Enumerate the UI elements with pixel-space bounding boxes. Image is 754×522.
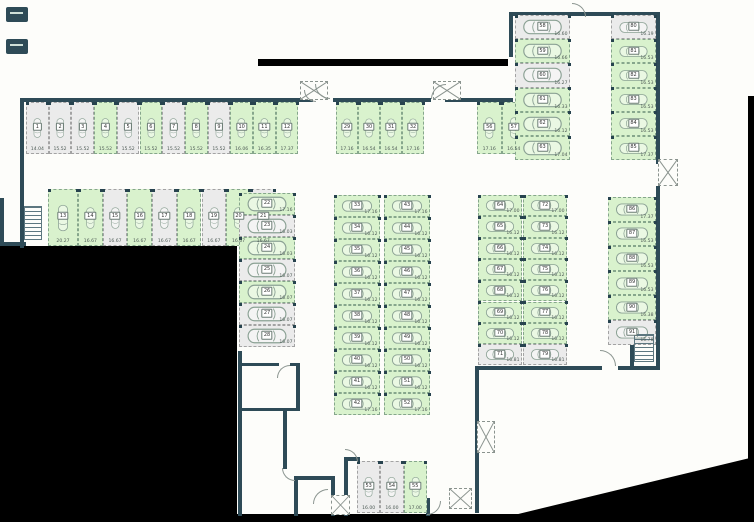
spot-size-label: 16.38 [640,313,653,318]
spot-size-label: 16.53 [640,129,653,134]
parking-spot-74[interactable]: 7416.12 [523,238,567,259]
spot-size-label: 15.52 [95,147,116,152]
spot-size-label: 16.12 [506,294,519,299]
parking-spot-76[interactable]: 7616.12 [523,280,567,301]
parking-spot-79[interactable]: 7916.81 [523,344,567,365]
parking-spot-80[interactable]: 8016.19 [611,15,656,39]
spot-size-label: 16.81 [551,358,564,363]
spot-number: 82 [628,71,639,80]
spot-size-label: 16.67 [203,239,226,244]
wall [2,242,26,246]
parking-spot-56[interactable]: 5617.16 [477,102,502,154]
spot-number: 20 [233,212,244,221]
spot-size-label: 17.37 [640,215,653,220]
spot-number: 52 [401,399,412,408]
spot-size-label: 16.12 [364,298,377,303]
spot-number: 14 [85,212,96,221]
spot-number: 48 [401,311,412,320]
spot-size-label: 17.00 [405,506,426,511]
spot-number: 60 [537,71,548,80]
spot-number: 71 [494,350,505,359]
spot-size-label: 16.12 [414,276,427,281]
spot-number: 70 [494,329,505,338]
parking-spot-66[interactable]: 6616.12 [478,238,522,259]
spot-number: 35 [351,245,362,254]
parking-spot-83[interactable]: 8316.53 [611,88,656,112]
spot-number: 40 [351,355,362,364]
spot-size-label: 15.52 [163,147,184,152]
spot-size-label: 15.52 [50,147,71,152]
door-arc-icon [572,3,586,17]
parking-spot-85[interactable]: 8517.37 [611,136,656,160]
spot-size-label: 16.12 [364,254,377,259]
parking-spot-3[interactable]: 315.52 [71,102,94,154]
door-arc-icon [313,489,328,504]
parking-spot-90[interactable]: 9016.38 [608,295,656,320]
parking-spot-35[interactable]: 3516.12 [334,239,380,261]
spot-number: 15 [109,212,120,221]
spot-size-label: 16.12 [551,252,564,257]
wall [656,12,660,164]
parking-spot-10[interactable]: 1016.06 [230,102,253,154]
parking-spot-6[interactable]: 615.52 [140,102,163,154]
spot-size-label: 17.16 [414,210,427,215]
spot-size-label: 16.27 [554,81,567,86]
spot-number: 16 [134,212,145,221]
spot-size-label: 15.52 [209,147,230,152]
stairs-icon [24,206,42,240]
spot-size-label: 16.78 [640,338,653,343]
spot-number: 34 [351,223,362,232]
spot-size-label: 16.12 [414,254,427,259]
spot-size-label: 16.12 [364,386,377,391]
spot-number: 72 [539,201,550,210]
void-area [0,246,237,522]
spot-number: 49 [401,333,412,342]
parking-spot-50[interactable]: 5016.12 [384,349,430,371]
door-arc-icon [277,365,290,378]
spot-number: 36 [351,267,362,276]
spot-size-label: 16.12 [364,276,377,281]
parking-spot-38[interactable]: 3816.12 [334,305,380,327]
parking-spot-70[interactable]: 7016.12 [478,323,522,344]
shaft-cross-icon [331,495,350,515]
spot-number: 13 [57,212,68,221]
spot-number: 31 [385,122,396,131]
parking-spot-58[interactable]: 5816.60 [515,15,570,39]
parking-spot-87[interactable]: 8716.53 [608,222,656,247]
parking-spot-60[interactable]: 6016.27 [515,63,570,87]
parking-spot-78[interactable]: 7816.12 [523,323,567,344]
parking-spot-31[interactable]: 3116.54 [380,102,402,154]
spot-number: 10 [236,122,247,131]
door-arc-icon [600,350,616,366]
spot-size-label: 16.54 [503,147,526,152]
spot-size-label: 16.19 [640,32,653,37]
parking-spot-12[interactable]: 1217.37 [276,102,299,154]
parking-spot-16[interactable]: 1616.67 [127,189,152,246]
spot-size-label: 16.67 [128,239,151,244]
spot-size-label: 17.00 [551,209,564,214]
parking-spot-28[interactable]: 2816.07 [239,325,295,347]
wall [294,476,334,480]
parking-spot-61[interactable]: 6116.33 [515,88,570,112]
spot-size-label: 16.12 [364,342,377,347]
parking-spot-5[interactable]: 515.52 [117,102,140,154]
parking-spot-41[interactable]: 4116.12 [334,371,380,393]
spot-size-label: 14.04 [27,147,48,152]
spot-number: 75 [539,265,550,274]
spot-size-label: 16.03 [279,252,292,257]
parking-spot-49[interactable]: 4916.12 [384,327,430,349]
spot-number: 57 [508,122,519,131]
spot-number: 38 [351,311,362,320]
parking-spot-14[interactable]: 1416.67 [78,189,103,246]
spot-number: 59 [537,46,548,55]
spot-size-label: 16.53 [640,56,653,61]
spot-size-label: 16.53 [640,81,653,86]
spot-size-label: 16.33 [554,105,567,110]
spot-size-label: 16.67 [178,239,201,244]
spot-size-label: 16.12 [551,316,564,321]
spot-size-label: 17.16 [279,208,292,213]
spot-size-label: 16.12 [506,252,519,257]
parking-spot-53[interactable]: 5316.00 [357,461,380,513]
parking-spot-44[interactable]: 4416.12 [384,217,430,239]
spot-number: 56 [484,122,495,131]
parking-spot-62[interactable]: 6216.12 [515,112,570,136]
spot-size-label: 16.12 [364,364,377,369]
parking-spot-18[interactable]: 1816.67 [177,189,202,246]
spot-size-label: 16.81 [506,358,519,363]
spot-number: 32 [407,122,418,131]
spot-number: 26 [261,287,272,296]
spot-size-label: 16.12 [554,129,567,134]
spot-number: 58 [537,22,548,31]
spot-number: 86 [626,204,637,213]
spot-number: 66 [494,243,505,252]
parking-spot-36[interactable]: 3616.12 [334,261,380,283]
spot-number: 67 [494,265,505,274]
parking-spot-15[interactable]: 1516.67 [103,189,128,246]
spot-size-label: 16.53 [640,264,653,269]
parking-spot-72[interactable]: 7217.00 [523,195,567,216]
parking-spot-68[interactable]: 6816.12 [478,280,522,301]
parking-spot-25[interactable]: 2516.07 [239,259,295,281]
spot-number: 17 [159,212,170,221]
spot-number: 46 [401,267,412,276]
parking-spot-84[interactable]: 8416.53 [611,112,656,136]
corner-marker-icon [6,7,28,22]
spot-number: 84 [628,119,639,128]
spot-number: 44 [401,223,412,232]
parking-spot-7[interactable]: 715.52 [162,102,185,154]
spot-size-label: 16.12 [414,386,427,391]
spot-number: 50 [401,355,412,364]
spot-size-label: 16.53 [640,105,653,110]
parking-spot-54[interactable]: 5416.00 [380,461,403,513]
spot-size-label: 16.00 [358,506,379,511]
spot-size-label: 16.54 [359,147,379,152]
spot-size-label: 16.12 [551,337,564,342]
spot-number: 9 [215,122,223,131]
parking-spot-34[interactable]: 3416.12 [334,217,380,239]
spot-number: 43 [401,201,412,210]
parking-spot-26[interactable]: 2616.07 [239,281,295,303]
spot-number: 91 [626,327,637,336]
spot-number: 27 [261,309,272,318]
parking-spot-4[interactable]: 415.52 [94,102,117,154]
spot-size-label: 16.54 [381,147,401,152]
spot-number: 22 [261,199,272,208]
shaft-cross-icon [477,421,495,453]
parking-spot-73[interactable]: 7316.12 [523,216,567,237]
spot-number: 61 [537,95,548,104]
parking-spot-32[interactable]: 3217.16 [402,102,424,154]
spot-number: 25 [261,265,272,274]
spot-number: 85 [628,143,639,152]
spot-size-label: 17.04 [554,153,567,158]
spot-size-label: 16.12 [506,337,519,342]
spot-size-label: 16.12 [551,294,564,299]
parking-spot-46[interactable]: 4616.12 [384,261,430,283]
spot-number: 76 [539,286,550,295]
spot-size-label: 16.12 [506,273,519,278]
parking-spot-45[interactable]: 4516.12 [384,239,430,261]
spot-number: 18 [183,212,194,221]
spot-size-label: 17.37 [277,147,298,152]
void-area [485,455,754,522]
wall [241,363,279,366]
spot-size-label: 17.16 [403,147,423,152]
spot-size-label: 16.67 [79,239,102,244]
spot-size-label: 16.12 [506,231,519,236]
parking-spot-55[interactable]: 5517.00 [404,461,427,513]
door-arc-icon [427,501,441,515]
parking-spot-75[interactable]: 7516.12 [523,259,567,280]
spot-size-label: 16.07 [279,296,292,301]
void-area [258,59,508,66]
spot-size-label: 16.12 [506,316,519,321]
spot-number: 45 [401,245,412,254]
spot-number: 51 [401,377,412,386]
spot-size-label: 16.00 [381,506,402,511]
spot-number: 41 [351,377,362,386]
spot-size-label: 16.53 [640,239,653,244]
spot-number: 77 [539,307,550,316]
wall [283,411,287,469]
spot-size-label: 16.35 [254,147,275,152]
spot-size-label: 17.16 [364,210,377,215]
spot-number: 83 [628,95,639,104]
spot-size-label: 17.16 [414,408,427,413]
spot-number: 88 [626,254,637,263]
parking-spot-77[interactable]: 7716.12 [523,302,567,323]
parking-spot-71[interactable]: 7116.81 [478,344,522,365]
parking-spot-2[interactable]: 215.52 [49,102,72,154]
spot-number: 7 [169,122,177,131]
parking-spot-67[interactable]: 6716.12 [478,259,522,280]
spot-number: 39 [351,333,362,342]
spot-number: 33 [351,201,362,210]
door-arc-icon [282,468,295,481]
parking-spot-43[interactable]: 4317.16 [384,195,430,217]
spot-number: 89 [626,278,637,287]
spot-number: 69 [494,307,505,316]
spot-number: 73 [539,222,550,231]
wall [0,198,4,246]
spot-number: 5 [124,122,132,131]
wall [618,366,658,370]
spot-number: 90 [626,303,637,312]
spot-size-label: 16.12 [364,232,377,237]
spot-number: 80 [628,22,639,31]
spot-size-label: 16.12 [414,364,427,369]
spot-size-label: 20.27 [49,239,77,244]
spot-size-label: 16.67 [104,239,127,244]
spot-number: 87 [626,229,637,238]
wall [238,351,242,516]
spot-number: 30 [363,122,374,131]
spot-number: 63 [537,143,548,152]
spot-size-label: 16.12 [414,342,427,347]
spot-number: 64 [494,201,505,210]
spot-size-label: 16.66 [554,56,567,61]
parking-spot-9[interactable]: 915.52 [208,102,231,154]
spot-size-label: 16.07 [279,318,292,323]
spot-number: 81 [628,46,639,55]
spot-number: 68 [494,286,505,295]
spot-number: 23 [261,221,272,230]
parking-spot-86[interactable]: 8617.37 [608,197,656,222]
spot-size-label: 16.07 [279,274,292,279]
parking-spot-91[interactable]: 9116.78 [608,320,656,345]
shaft-cross-icon [449,488,472,509]
spot-number: 47 [401,289,412,298]
wall [509,12,513,57]
parking-spot-52[interactable]: 5217.16 [384,393,430,415]
spot-number: 3 [79,122,87,131]
spot-number: 53 [363,481,374,490]
spot-number: 8 [192,122,200,131]
spot-size-label: 16.12 [364,320,377,325]
spot-number: 21 [258,212,269,221]
spot-size-label: 17.16 [364,408,377,413]
parking-spot-13[interactable]: 1320.27 [48,189,78,246]
spot-size-label: 17.16 [337,147,357,152]
parking-spot-30[interactable]: 3016.54 [358,102,380,154]
parking-spot-39[interactable]: 3916.12 [334,327,380,349]
spot-size-label: 17.00 [506,209,519,214]
wall [656,186,660,368]
parking-spot-19[interactable]: 1916.67 [202,189,227,246]
spot-size-label: 16.67 [227,239,250,244]
spot-number: 79 [539,350,550,359]
parking-spot-40[interactable]: 4016.12 [334,349,380,371]
parking-spot-65[interactable]: 6516.12 [478,216,522,237]
spot-size-label: 16.12 [551,273,564,278]
spot-size-label: 17.16 [478,147,501,152]
spot-number: 74 [539,243,550,252]
spot-number: 54 [386,481,397,490]
parking-spot-33[interactable]: 3317.16 [334,195,380,217]
spot-size-label: 15.52 [72,147,93,152]
spot-size-label: 16.07 [279,340,292,345]
spot-number: 55 [410,481,421,490]
spot-number: 12 [281,122,292,131]
spot-size-label: 16.53 [640,288,653,293]
parking-spot-89[interactable]: 8916.53 [608,271,656,296]
wall [296,363,300,411]
spot-number: 24 [261,243,272,252]
spot-size-label: 15.52 [141,147,162,152]
wall [477,366,602,370]
corner-marker-icon [6,39,28,54]
parking-spot-1[interactable]: 114.04 [26,102,49,154]
parking-spot-11[interactable]: 1116.35 [253,102,276,154]
spot-number: 11 [259,122,270,131]
parking-spot-82[interactable]: 8216.53 [611,63,656,87]
spot-size-label: 16.12 [551,231,564,236]
parking-spot-81[interactable]: 8116.53 [611,39,656,63]
wall [241,408,299,411]
spot-number: 19 [208,212,219,221]
spot-number: 28 [261,331,272,340]
spot-number: 62 [537,119,548,128]
parking-spot-64[interactable]: 6417.00 [478,195,522,216]
wall [294,476,298,516]
spot-number: 42 [351,399,362,408]
parking-spot-88[interactable]: 8816.53 [608,246,656,271]
spot-size-label: 16.03 [279,230,292,235]
spot-size-label: 16.67 [153,239,176,244]
door-arc-icon [345,449,358,462]
parking-spot-17[interactable]: 1716.67 [152,189,177,246]
parking-spot-8[interactable]: 815.52 [185,102,208,154]
spot-number: 2 [56,122,64,131]
parking-spot-59[interactable]: 5916.66 [515,39,570,63]
spot-number: 37 [351,289,362,298]
spot-size-label: 15.52 [118,147,139,152]
spot-number: 6 [147,122,155,131]
spot-number: 1 [33,122,41,131]
shaft-cross-icon [658,159,678,186]
spot-size-label: 16.12 [414,298,427,303]
floor-plan: 114.04215.52315.52415.52515.52615.52715.… [0,0,754,522]
spot-size-label: 16.12 [414,232,427,237]
parking-spot-47[interactable]: 4716.12 [384,283,430,305]
parking-spot-27[interactable]: 2716.07 [239,303,295,325]
spot-number: 65 [494,222,505,231]
parking-spot-51[interactable]: 5116.12 [384,371,430,393]
spot-number: 78 [539,329,550,338]
spot-number: 4 [101,122,109,131]
spot-number: 29 [341,122,352,131]
spot-size-label: 15.52 [186,147,207,152]
parking-spot-29[interactable]: 2917.16 [336,102,358,154]
spot-size-label: 17.37 [640,153,653,158]
spot-size-label: 16.12 [414,320,427,325]
spot-size-label: 16.06 [231,147,252,152]
parking-spot-42[interactable]: 4217.16 [334,393,380,415]
parking-spot-37[interactable]: 3716.12 [334,283,380,305]
spot-size-label: 16.60 [554,32,567,37]
parking-spot-69[interactable]: 6916.12 [478,302,522,323]
parking-spot-48[interactable]: 4816.12 [384,305,430,327]
